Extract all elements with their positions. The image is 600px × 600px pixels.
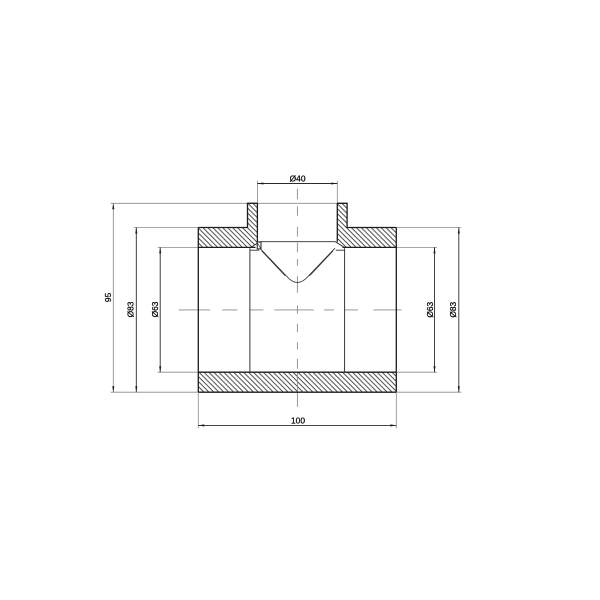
svg-text:Ø63: Ø63: [150, 301, 160, 317]
svg-text:Ø40: Ø40: [290, 174, 306, 184]
svg-text:Ø83: Ø83: [125, 301, 135, 317]
svg-text:100: 100: [291, 416, 305, 426]
svg-text:95: 95: [103, 292, 113, 302]
svg-text:Ø83: Ø83: [448, 301, 458, 317]
svg-text:Ø63: Ø63: [425, 301, 435, 317]
